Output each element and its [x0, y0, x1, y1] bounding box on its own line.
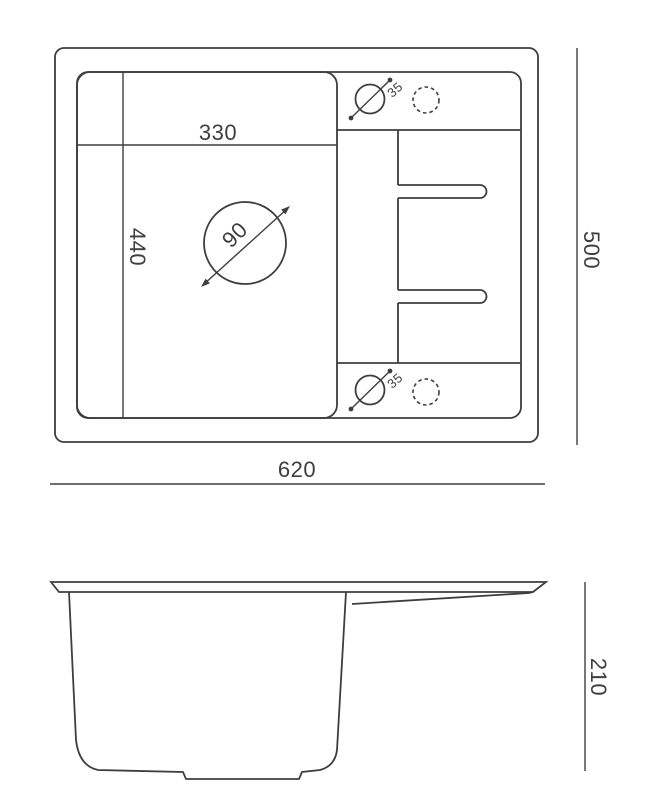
tap-hole-bottom-alt-position: [413, 379, 439, 405]
tap-hole-top: 35: [349, 78, 439, 121]
drainboard-groove-2: [398, 290, 487, 303]
tap-hole-bottom-dot-1-icon: [349, 407, 354, 412]
tap-hole-bottom: 35: [349, 369, 439, 412]
overall-width-label: 620: [278, 457, 316, 482]
drain-hole-circle: [204, 202, 286, 284]
sink-technical-drawing: 330 440 90 35: [0, 0, 654, 800]
drainboard-groove-1: [398, 185, 487, 198]
side-rim-flange: [51, 582, 546, 592]
tap-hole-top-alt-position: [413, 87, 439, 113]
tap-hole-top-dot-1-icon: [349, 116, 354, 121]
drawing-svg: 330 440 90 35: [0, 0, 654, 800]
side-view: 210: [51, 582, 611, 779]
overall-height-label: 210: [586, 658, 611, 696]
overall-depth-label: 500: [579, 231, 604, 269]
drain-diameter-label: 90: [217, 217, 253, 253]
side-bowl-profile: [69, 592, 346, 779]
bowl-depth-label: 440: [125, 228, 150, 266]
side-drainboard-slope: [352, 592, 533, 604]
drain-diameter-line: [203, 208, 288, 285]
top-view: 330 440 90 35: [50, 48, 604, 484]
bowl-width-label: 330: [199, 120, 237, 145]
